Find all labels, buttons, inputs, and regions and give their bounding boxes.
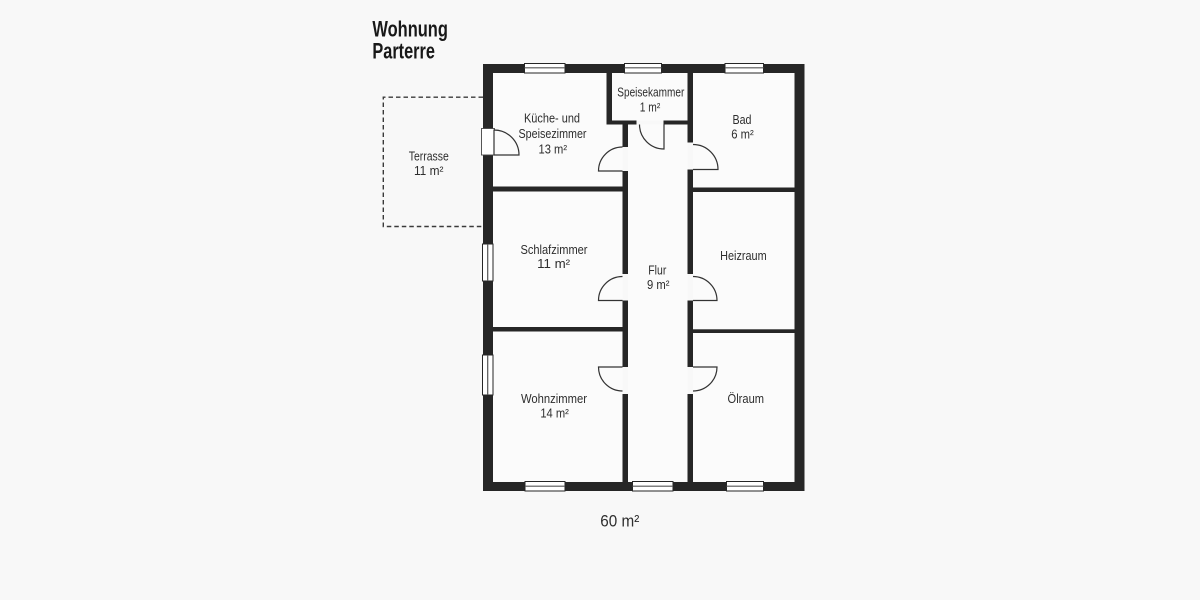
svg-text:Flur: Flur [648, 263, 667, 278]
svg-text:Küche- und: Küche- und [524, 111, 580, 126]
svg-text:Wohnzimmer: Wohnzimmer [521, 391, 588, 406]
svg-text:6 m²: 6 m² [731, 127, 754, 142]
svg-text:60 m²: 60 m² [600, 513, 639, 531]
svg-text:13 m²: 13 m² [539, 142, 568, 157]
svg-text:Speisekammer: Speisekammer [617, 86, 684, 100]
svg-text:Parterre: Parterre [372, 38, 435, 63]
svg-text:Bad: Bad [733, 112, 752, 127]
svg-text:Heizraum: Heizraum [720, 248, 767, 263]
svg-text:11 m²: 11 m² [414, 163, 444, 178]
svg-text:Terrasse: Terrasse [409, 149, 449, 164]
svg-text:1 m²: 1 m² [640, 101, 661, 115]
svg-text:Schlafzimmer: Schlafzimmer [521, 242, 589, 257]
svg-text:11 m²: 11 m² [537, 256, 571, 271]
svg-text:Speisezimmer: Speisezimmer [519, 126, 588, 141]
svg-text:9 m²: 9 m² [647, 277, 670, 292]
svg-text:Ölraum: Ölraum [728, 391, 765, 406]
svg-text:14 m²: 14 m² [540, 406, 569, 421]
